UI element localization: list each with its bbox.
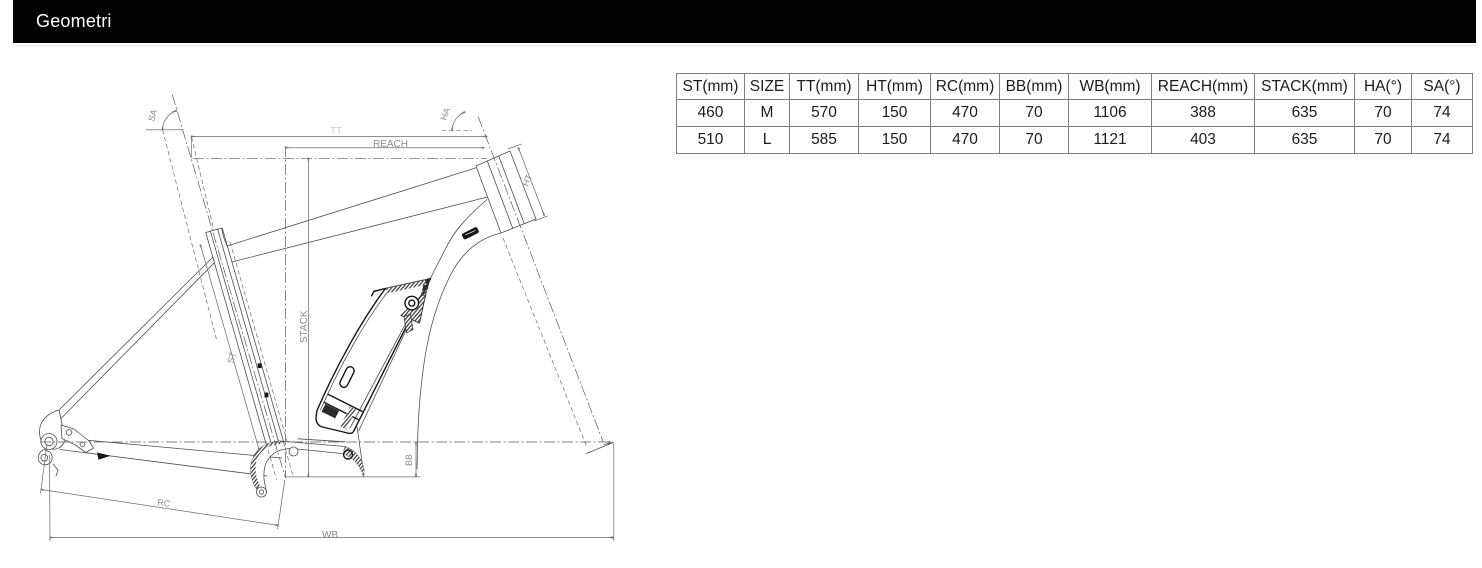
svg-text:SA: SA — [146, 108, 159, 122]
svg-text:HT: HT — [521, 172, 535, 187]
svg-text:ST: ST — [225, 350, 238, 364]
svg-text:TT: TT — [330, 126, 342, 137]
svg-text:HA: HA — [438, 107, 452, 122]
svg-text:RC: RC — [157, 497, 172, 509]
svg-text:STACK: STACK — [299, 310, 310, 343]
svg-text:WB: WB — [322, 530, 338, 541]
svg-text:BB: BB — [404, 454, 414, 466]
svg-text:REACH: REACH — [373, 139, 408, 150]
